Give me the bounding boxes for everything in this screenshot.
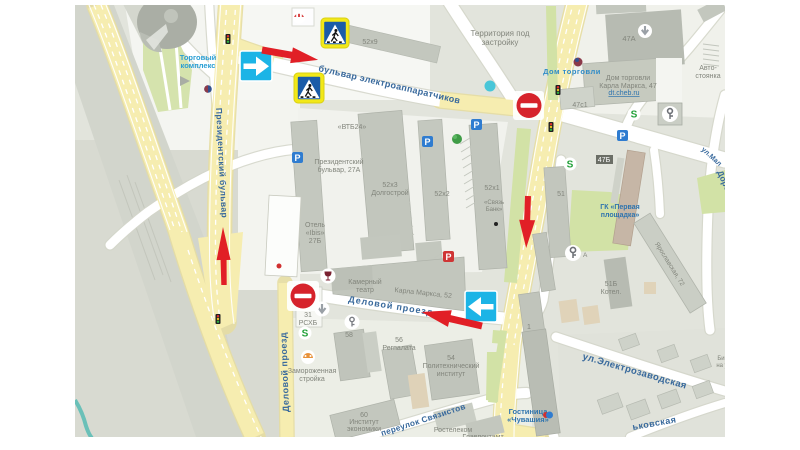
svg-text:56: 56 (395, 337, 403, 344)
svg-text:РСХБ: РСХБ (299, 320, 318, 327)
svg-text:Камерный: Камерный (348, 278, 381, 286)
svg-text:Ростелеком: Ростелеком (434, 427, 473, 434)
svg-text:S: S (567, 160, 574, 171)
svg-text:Дом торговли: Дом торговли (606, 75, 650, 82)
svg-text:экономики: экономики (347, 426, 381, 433)
svg-text:P: P (473, 120, 479, 130)
svg-text:«Ibis»: «Ibis» (306, 230, 325, 237)
svg-text:52х1: 52х1 (484, 185, 499, 192)
svg-text:Политехнический: Политехнический (423, 362, 480, 370)
svg-text:P: P (619, 131, 625, 141)
svg-text:52х3: 52х3 (382, 182, 397, 189)
svg-text:Долгострой: Долгострой (371, 189, 408, 197)
svg-text:Отель: Отель (305, 222, 325, 229)
svg-text:комплекс: комплекс (181, 61, 216, 70)
svg-text:институт: институт (437, 371, 466, 378)
svg-text:47А: 47А (622, 34, 635, 43)
svg-text:1: 1 (527, 324, 531, 331)
svg-text:60: 60 (360, 412, 368, 419)
svg-text:31: 31 (304, 312, 312, 319)
svg-text:театр: театр (356, 287, 374, 294)
svg-text:S: S (302, 329, 309, 340)
svg-text:Карла Маркса, 47: Карла Маркса, 47 (599, 83, 657, 90)
svg-text:«Связь: «Связь (484, 200, 504, 206)
svg-text:Территория под: Территория под (470, 29, 529, 38)
svg-text:P: P (424, 137, 430, 147)
svg-text:Котел.: Котел. (601, 289, 622, 296)
svg-text:Би: Би (717, 356, 724, 362)
svg-text:ГК «Первая: ГК «Первая (600, 204, 639, 211)
svg-text:Дом торговли: Дом торговли (543, 67, 601, 76)
svg-text:Банк»: Банк» (486, 207, 503, 213)
svg-text:площадка»: площадка» (601, 212, 640, 219)
svg-text:А: А (583, 252, 588, 259)
svg-text:Регпалата: Регпалата (382, 345, 415, 352)
svg-text:«Чувашия»: «Чувашия» (507, 415, 549, 424)
svg-text:бульвар, 27А: бульвар, 27А (318, 166, 361, 174)
svg-text:Авто-: Авто- (699, 65, 717, 72)
svg-text:dt.cheb.ru: dt.cheb.ru (608, 90, 639, 97)
svg-text:52х9: 52х9 (362, 39, 377, 46)
svg-text:51Б: 51Б (605, 281, 618, 288)
svg-text:P: P (294, 153, 300, 163)
svg-text:P: P (445, 252, 451, 262)
svg-text:51: 51 (557, 191, 565, 198)
svg-text:54: 54 (447, 355, 455, 362)
svg-text:стройка: стройка (299, 375, 325, 383)
svg-text:Замороженная: Замороженная (288, 368, 337, 375)
svg-text:застройку: застройку (482, 38, 519, 47)
svg-text:S: S (631, 110, 638, 121)
svg-text:27Б: 27Б (309, 238, 322, 245)
svg-text:Президентский: Президентский (314, 158, 363, 166)
svg-text:Институт: Институт (349, 419, 379, 426)
svg-text:«ВТБ24»: «ВТБ24» (338, 124, 367, 131)
svg-text:стоянка: стоянка (695, 73, 720, 80)
svg-text:52х2: 52х2 (434, 191, 449, 198)
svg-text:47с1: 47с1 (572, 102, 587, 109)
svg-text:47Б: 47Б (598, 157, 611, 164)
svg-text:58: 58 (345, 332, 353, 339)
